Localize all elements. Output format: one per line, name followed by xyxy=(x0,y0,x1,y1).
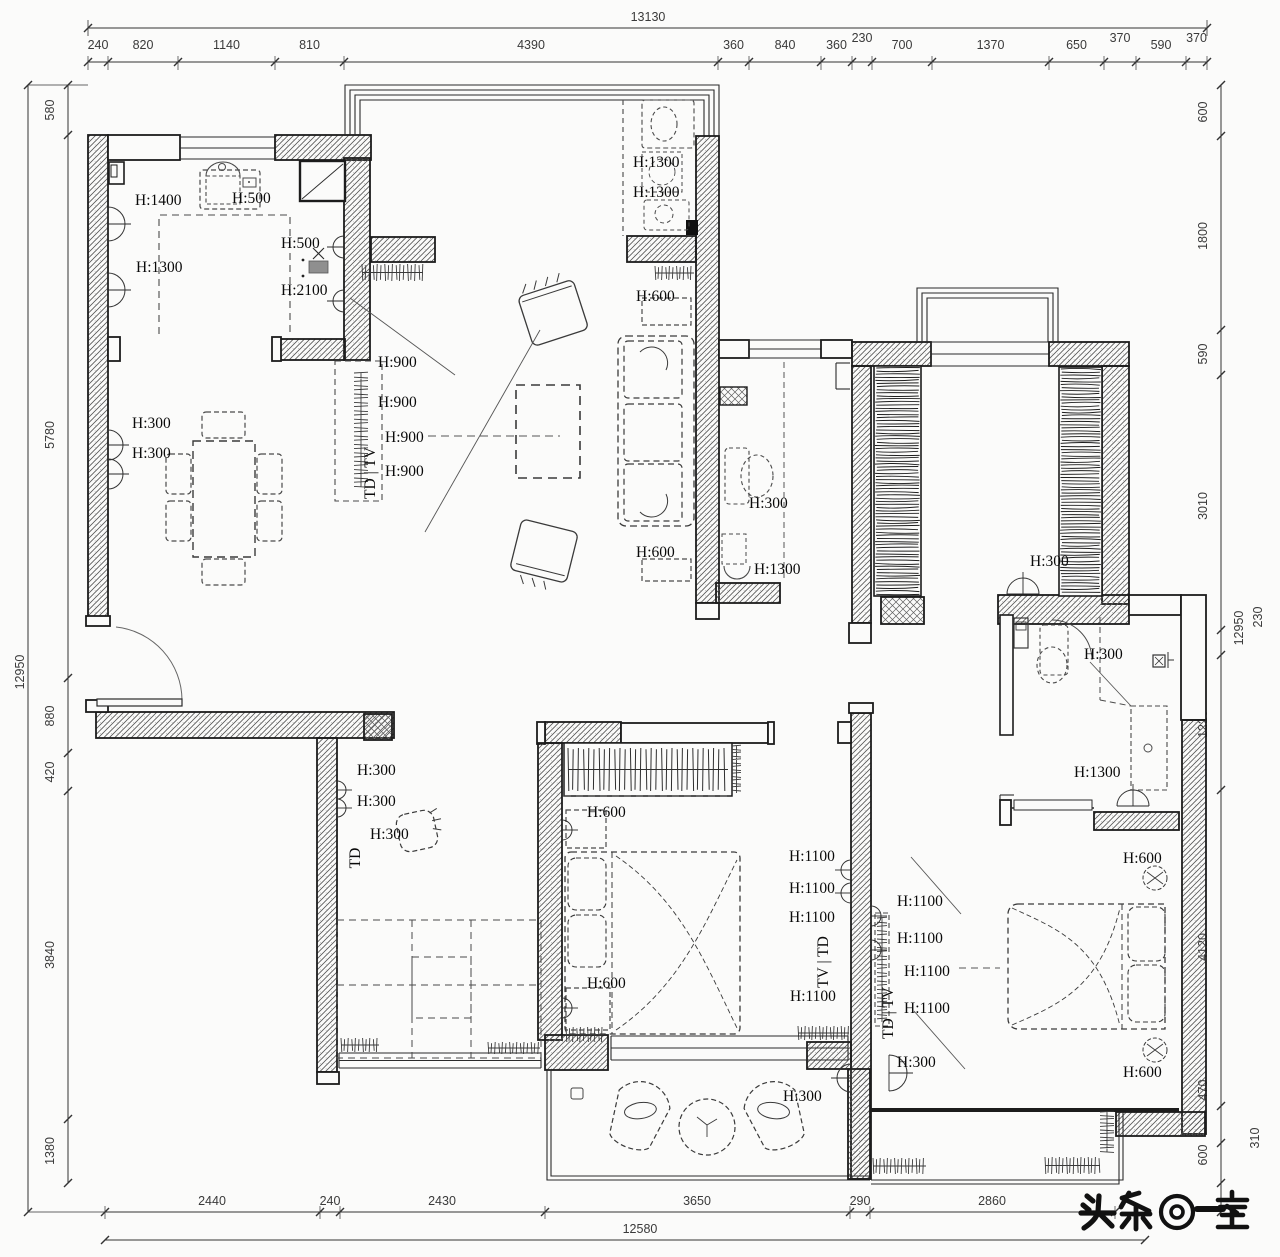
svg-text:240: 240 xyxy=(88,38,109,52)
svg-text:4390: 4390 xyxy=(517,38,545,52)
svg-text:H:500: H:500 xyxy=(232,190,271,207)
svg-text:H:1300: H:1300 xyxy=(754,561,801,578)
svg-text:12580: 12580 xyxy=(623,1222,658,1236)
svg-text:370: 370 xyxy=(1110,31,1131,45)
svg-text:600: 600 xyxy=(1196,1145,1210,1166)
svg-text:H:300: H:300 xyxy=(370,826,409,843)
svg-text:H:600: H:600 xyxy=(1123,1064,1162,1081)
svg-text:H:1100: H:1100 xyxy=(897,930,943,947)
svg-text:2430: 2430 xyxy=(428,1194,456,1208)
svg-text:H:2100: H:2100 xyxy=(281,282,328,299)
svg-text:650: 650 xyxy=(1066,38,1087,52)
svg-text:H:1300: H:1300 xyxy=(633,154,680,171)
svg-text:12950: 12950 xyxy=(1232,611,1246,646)
svg-text:H:1100: H:1100 xyxy=(789,909,835,926)
svg-text:H:600: H:600 xyxy=(636,288,675,305)
svg-text:TD | TV: TD | TV xyxy=(362,446,379,499)
svg-text:H:300: H:300 xyxy=(357,793,396,810)
svg-text:H:1100: H:1100 xyxy=(789,848,835,865)
svg-text:H:600: H:600 xyxy=(636,544,675,561)
svg-text:2860: 2860 xyxy=(978,1194,1006,1208)
svg-text:600: 600 xyxy=(1196,102,1210,123)
svg-text:H:1100: H:1100 xyxy=(904,1000,950,1017)
svg-text:1800: 1800 xyxy=(1196,222,1210,250)
svg-text:1140: 1140 xyxy=(213,38,240,52)
svg-text:290: 290 xyxy=(850,1194,871,1208)
svg-text:H:500: H:500 xyxy=(281,235,320,252)
svg-text:TD: TD xyxy=(347,848,364,869)
svg-text:H:1100: H:1100 xyxy=(897,893,943,910)
svg-text:H:1300: H:1300 xyxy=(633,184,680,201)
svg-text:840: 840 xyxy=(775,38,796,52)
svg-text:810: 810 xyxy=(299,38,320,52)
svg-text:H:300: H:300 xyxy=(783,1088,822,1105)
svg-text:H:300: H:300 xyxy=(132,415,171,432)
svg-text:H:600: H:600 xyxy=(587,975,626,992)
svg-text:H:300: H:300 xyxy=(1084,646,1123,663)
svg-text:590: 590 xyxy=(1151,38,1172,52)
svg-text:310: 310 xyxy=(1248,1128,1262,1149)
svg-text:360: 360 xyxy=(723,38,744,52)
svg-text:420: 420 xyxy=(43,762,57,783)
svg-text:230: 230 xyxy=(1251,607,1265,628)
svg-text:370: 370 xyxy=(1186,31,1207,45)
svg-text:880: 880 xyxy=(43,706,57,727)
svg-text:H:1300: H:1300 xyxy=(1074,764,1121,781)
svg-text:H:600: H:600 xyxy=(587,804,626,821)
svg-text:H:900: H:900 xyxy=(378,394,417,411)
svg-text:H:300: H:300 xyxy=(357,762,396,779)
svg-text:700: 700 xyxy=(892,38,913,52)
svg-text:TD | TV: TD | TV xyxy=(880,986,897,1039)
svg-text:TV | TD: TV | TD xyxy=(815,936,832,988)
svg-text:H:1100: H:1100 xyxy=(904,963,950,980)
svg-text:H:900: H:900 xyxy=(385,463,424,480)
svg-text:820: 820 xyxy=(133,38,154,52)
svg-text:H:1100: H:1100 xyxy=(790,988,836,1005)
svg-text:1380: 1380 xyxy=(43,1137,57,1165)
svg-text:230: 230 xyxy=(852,31,873,45)
svg-text:3010: 3010 xyxy=(1196,492,1210,520)
svg-text:H:1100: H:1100 xyxy=(789,880,835,897)
svg-text:H:300: H:300 xyxy=(1030,553,1069,570)
svg-text:H:300: H:300 xyxy=(897,1054,936,1071)
svg-text:H:600: H:600 xyxy=(1123,850,1162,867)
svg-text:1370: 1370 xyxy=(977,38,1005,52)
svg-text:2440: 2440 xyxy=(198,1194,226,1208)
svg-text:H:300: H:300 xyxy=(132,445,171,462)
svg-text:3840: 3840 xyxy=(43,941,57,969)
svg-text:13130: 13130 xyxy=(631,10,666,24)
svg-text:360: 360 xyxy=(826,38,847,52)
svg-text:H:1300: H:1300 xyxy=(136,259,183,276)
svg-text:5780: 5780 xyxy=(43,421,57,449)
svg-text:12950: 12950 xyxy=(13,655,27,690)
svg-text:H:300: H:300 xyxy=(749,495,788,512)
svg-text:3650: 3650 xyxy=(683,1194,711,1208)
svg-text:590: 590 xyxy=(1196,344,1210,365)
svg-text:H:1400: H:1400 xyxy=(135,192,182,209)
svg-text:H:900: H:900 xyxy=(378,354,417,371)
svg-text:580: 580 xyxy=(43,100,57,121)
svg-text:H:900: H:900 xyxy=(385,429,424,446)
svg-text:240: 240 xyxy=(320,1194,341,1208)
